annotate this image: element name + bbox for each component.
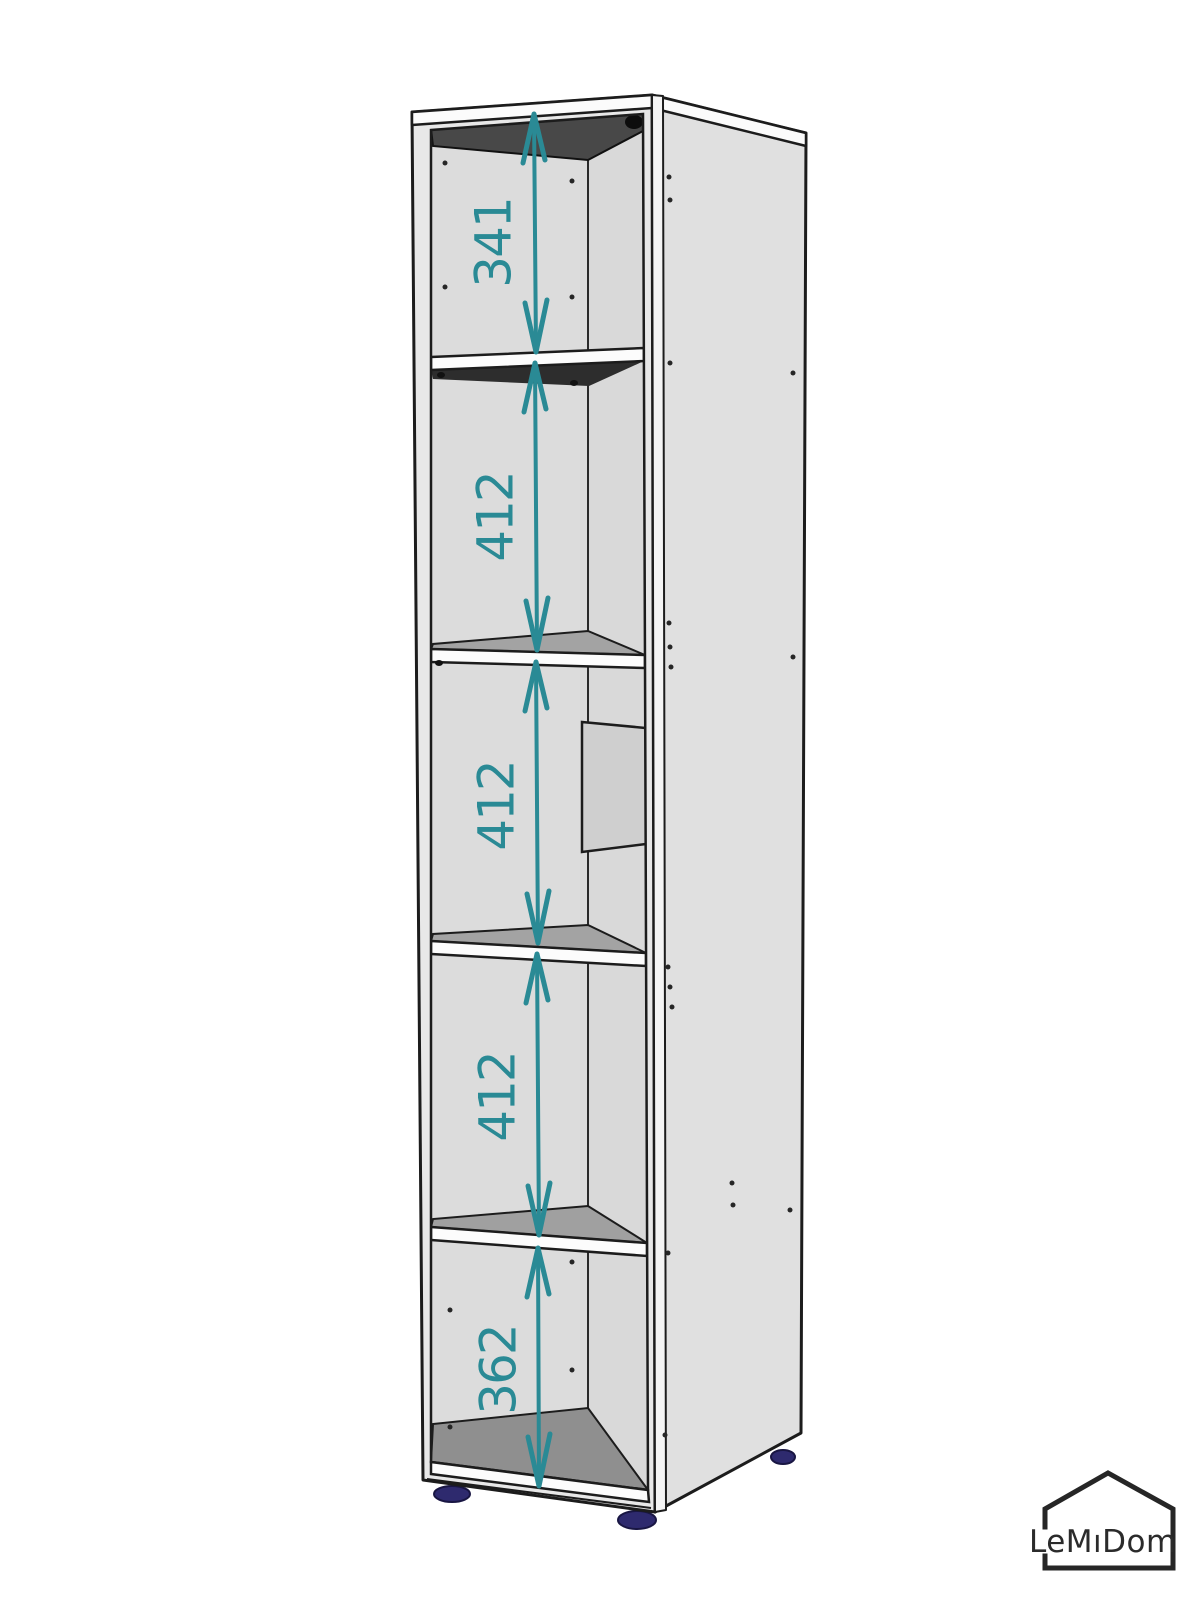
- furniture-dimension-diagram: 341 412 412 412 362 LeMıDom: [0, 0, 1200, 1600]
- side-panel-right: [652, 95, 806, 1512]
- front-right-corner-edge: [652, 95, 666, 1512]
- back-panel-seam: [582, 722, 646, 852]
- lemidom-logo: LeMıDom: [1029, 1473, 1177, 1568]
- foot-front-right: [618, 1511, 656, 1529]
- logo-text: LeMıDom: [1029, 1524, 1177, 1560]
- foot-back-right: [771, 1450, 795, 1464]
- cabinet-diagram-canvas: 341 412 412 412 362 LeMıDom: [0, 0, 1200, 1600]
- shelf-pin: [437, 372, 445, 378]
- foot-front-left: [434, 1486, 470, 1502]
- dimension-label-4: 412: [469, 1052, 527, 1141]
- dimension-label-1: 341: [465, 198, 523, 287]
- ceiling-fitting-hole: [625, 115, 643, 129]
- dimension-label-3: 412: [468, 761, 526, 850]
- dimension-label-2: 412: [467, 472, 525, 561]
- shelf-pin: [435, 660, 443, 666]
- shelf-pin: [570, 380, 578, 386]
- dimension-label-5: 362: [470, 1325, 528, 1414]
